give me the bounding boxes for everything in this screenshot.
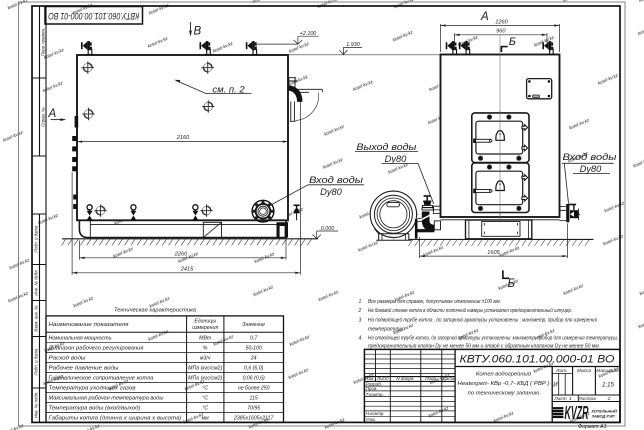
svg-text:предохранительный клапан Dy не: предохранительный клапан Dy не менее 50 … (368, 342, 600, 349)
svg-text:°С: °С (202, 386, 208, 392)
svg-text:Dy80: Dy80 (580, 164, 603, 174)
svg-text:4: 4 (359, 335, 362, 341)
svg-text:Формат А3: Формат А3 (578, 424, 606, 430)
svg-text:Выход воды: Выход воды (356, 142, 416, 152)
svg-text:°С: °С (202, 396, 208, 402)
svg-text:по техническому заданию: по техническому заданию (468, 390, 540, 396)
svg-text:И: И (553, 382, 558, 388)
svg-text:Подп. и дата: Подп. и дата (33, 225, 38, 253)
svg-text:0,06 (0,6): 0,06 (0,6) (243, 376, 265, 382)
svg-text:Т.контр.: Т.контр. (366, 392, 384, 397)
svg-text:Б: Б (508, 278, 516, 290)
svg-text:Инв. № подл.: Инв. № подл. (33, 392, 38, 419)
svg-text:0.000: 0.000 (321, 226, 335, 232)
svg-text:измерения: измерения (192, 325, 218, 331)
svg-text:Лист: Лист (376, 376, 389, 381)
svg-text:2: 2 (358, 308, 362, 314)
svg-text:В: В (194, 26, 202, 38)
svg-text:Вход воды: Вход воды (563, 152, 617, 162)
svg-text:Лист: Лист (553, 396, 566, 402)
svg-text:24: 24 (250, 356, 257, 362)
svg-text:Справ. №: Справ. № (41, 107, 46, 127)
svg-text:Листов: Листов (577, 396, 596, 402)
svg-text:KVZR: KVZR (565, 404, 589, 424)
svg-text:температуры.: температуры. (368, 327, 405, 333)
svg-text:1260: 1260 (495, 19, 508, 25)
svg-text:%: % (203, 346, 208, 352)
svg-text:2385х1605х2117: 2385х1605х2117 (233, 416, 275, 422)
svg-text:Дата: Дата (442, 376, 455, 381)
svg-text:960: 960 (496, 29, 506, 35)
svg-text:2: 2 (607, 396, 611, 402)
svg-text:не более 250: не более 250 (238, 386, 270, 392)
svg-text:Подп. и дата: Подп. и дата (33, 348, 38, 376)
svg-text:Единицы: Единицы (194, 318, 216, 324)
svg-text:МПа (кгс/см2): МПа (кгс/см2) (188, 376, 222, 382)
svg-text:2160: 2160 (176, 135, 190, 141)
svg-text:70/95: 70/95 (247, 406, 260, 412)
svg-text:На подводящей трубе котла , д: На подводящей трубе котла , до запорной … (368, 317, 597, 324)
svg-text:1: 1 (569, 396, 572, 402)
svg-text:Температура уходящих газов: Температура уходящих газов (49, 386, 136, 392)
svg-text:1605: 1605 (487, 250, 500, 256)
svg-text:А: А (480, 11, 489, 23)
svg-text:Котел водогрейный: Котел водогрейный (476, 371, 532, 378)
svg-text:Масса: Масса (577, 368, 592, 374)
svg-text:2260: 2260 (174, 252, 188, 258)
svg-text:1: 1 (359, 299, 362, 305)
svg-text:50-100: 50-100 (246, 346, 262, 352)
svg-text:Утв.: Утв. (366, 417, 376, 422)
svg-text:Перв. примен.: Перв. примен. (41, 28, 46, 57)
svg-text:Габариты котла (длинна х ширин: Габариты котла (длинна х ширина х высота… (49, 416, 182, 422)
svg-text:Температура воды (вход/выход): Температура воды (вход/выход) (49, 406, 141, 412)
svg-text:На отводящей трубе котла, до з: На отводящей трубе котла, до запорной ар… (368, 334, 618, 341)
svg-text:Взам. инв. №: Взам. инв. № (33, 305, 38, 332)
svg-text:Н.контр.: Н.контр. (366, 411, 385, 416)
svg-text:N докум.: N докум. (396, 376, 414, 381)
svg-text:Подп.: Подп. (425, 376, 437, 381)
svg-text:Максимальная рабочая температу: Максимальная рабочая температура воды (49, 396, 164, 402)
svg-text:МВт: МВт (199, 336, 212, 342)
svg-text:Гидравлическое сопротивление к: Гидравлическое сопротивление котла (49, 376, 154, 382)
svg-text:Расход воды: Расход воды (49, 356, 86, 362)
svg-text:2415: 2415 (180, 267, 194, 273)
svg-text:Значение: Значение (242, 322, 265, 328)
svg-text:Рабочее давление воды: Рабочее давление воды (49, 366, 119, 372)
svg-text:Техническая характеристика: Техническая характеристика (114, 307, 197, 313)
svg-text:Dy80: Dy80 (385, 154, 408, 164)
svg-text:КВТУ.060.101.00.000-01 ВО: КВТУ.060.101.00.000-01 ВО (48, 11, 140, 22)
svg-text:Вход воды: Вход воды (309, 175, 363, 185)
svg-text:Номинальная мощность: Номинальная мощность (49, 336, 112, 342)
svg-text:м3/ч: м3/ч (200, 356, 211, 362)
svg-text:Наименование показателя: Наименование показателя (49, 322, 129, 328)
svg-text:Диапазон рабочего регулировани: Диапазон рабочего регулирования (47, 346, 143, 352)
svg-text:Изм.: Изм. (365, 376, 375, 381)
svg-text:На боковой стенке котла в обла: На боковой стенке котла в области топочн… (368, 307, 572, 314)
svg-text:Все размеры для справок, допус: Все размеры для справок, допустимое откл… (368, 299, 501, 305)
svg-text:1:15: 1:15 (602, 383, 614, 389)
svg-text:МПа (кгс/см2): МПа (кгс/см2) (188, 366, 222, 372)
svg-text:Dy80: Dy80 (320, 187, 343, 197)
svg-text:1.930: 1.930 (346, 42, 360, 48)
svg-text:115: 115 (250, 396, 258, 402)
svg-text:Heatexpert- КВр -0,7- КБД ( РВ: Heatexpert- КВр -0,7- КБД ( РВР ) (458, 381, 550, 387)
svg-text:А: А (48, 108, 57, 120)
svg-text:см. п. 2: см. п. 2 (212, 84, 245, 95)
svg-text:3: 3 (359, 318, 362, 324)
svg-text:Б: Б (509, 36, 516, 48)
svg-text:Лит.: Лит. (555, 368, 567, 374)
svg-text:ЗАВОД РЭП: ЗАВОД РЭП (592, 413, 615, 418)
svg-text:0,6 (6,0): 0,6 (6,0) (244, 366, 264, 372)
svg-text:КВТУ.060.101.00.000-01 ВО: КВТУ.060.101.00.000-01 ВО (460, 353, 615, 365)
svg-text:°С: °С (202, 406, 208, 412)
svg-text:мм: мм (202, 416, 210, 422)
svg-text:Масштаб: Масштаб (596, 368, 619, 374)
svg-text:Пров.: Пров. (366, 386, 378, 391)
svg-text:+2.100: +2.100 (300, 31, 317, 37)
svg-text:Инв. № дубл.: Инв. № дубл. (33, 269, 38, 295)
svg-text:0,7: 0,7 (250, 336, 258, 342)
